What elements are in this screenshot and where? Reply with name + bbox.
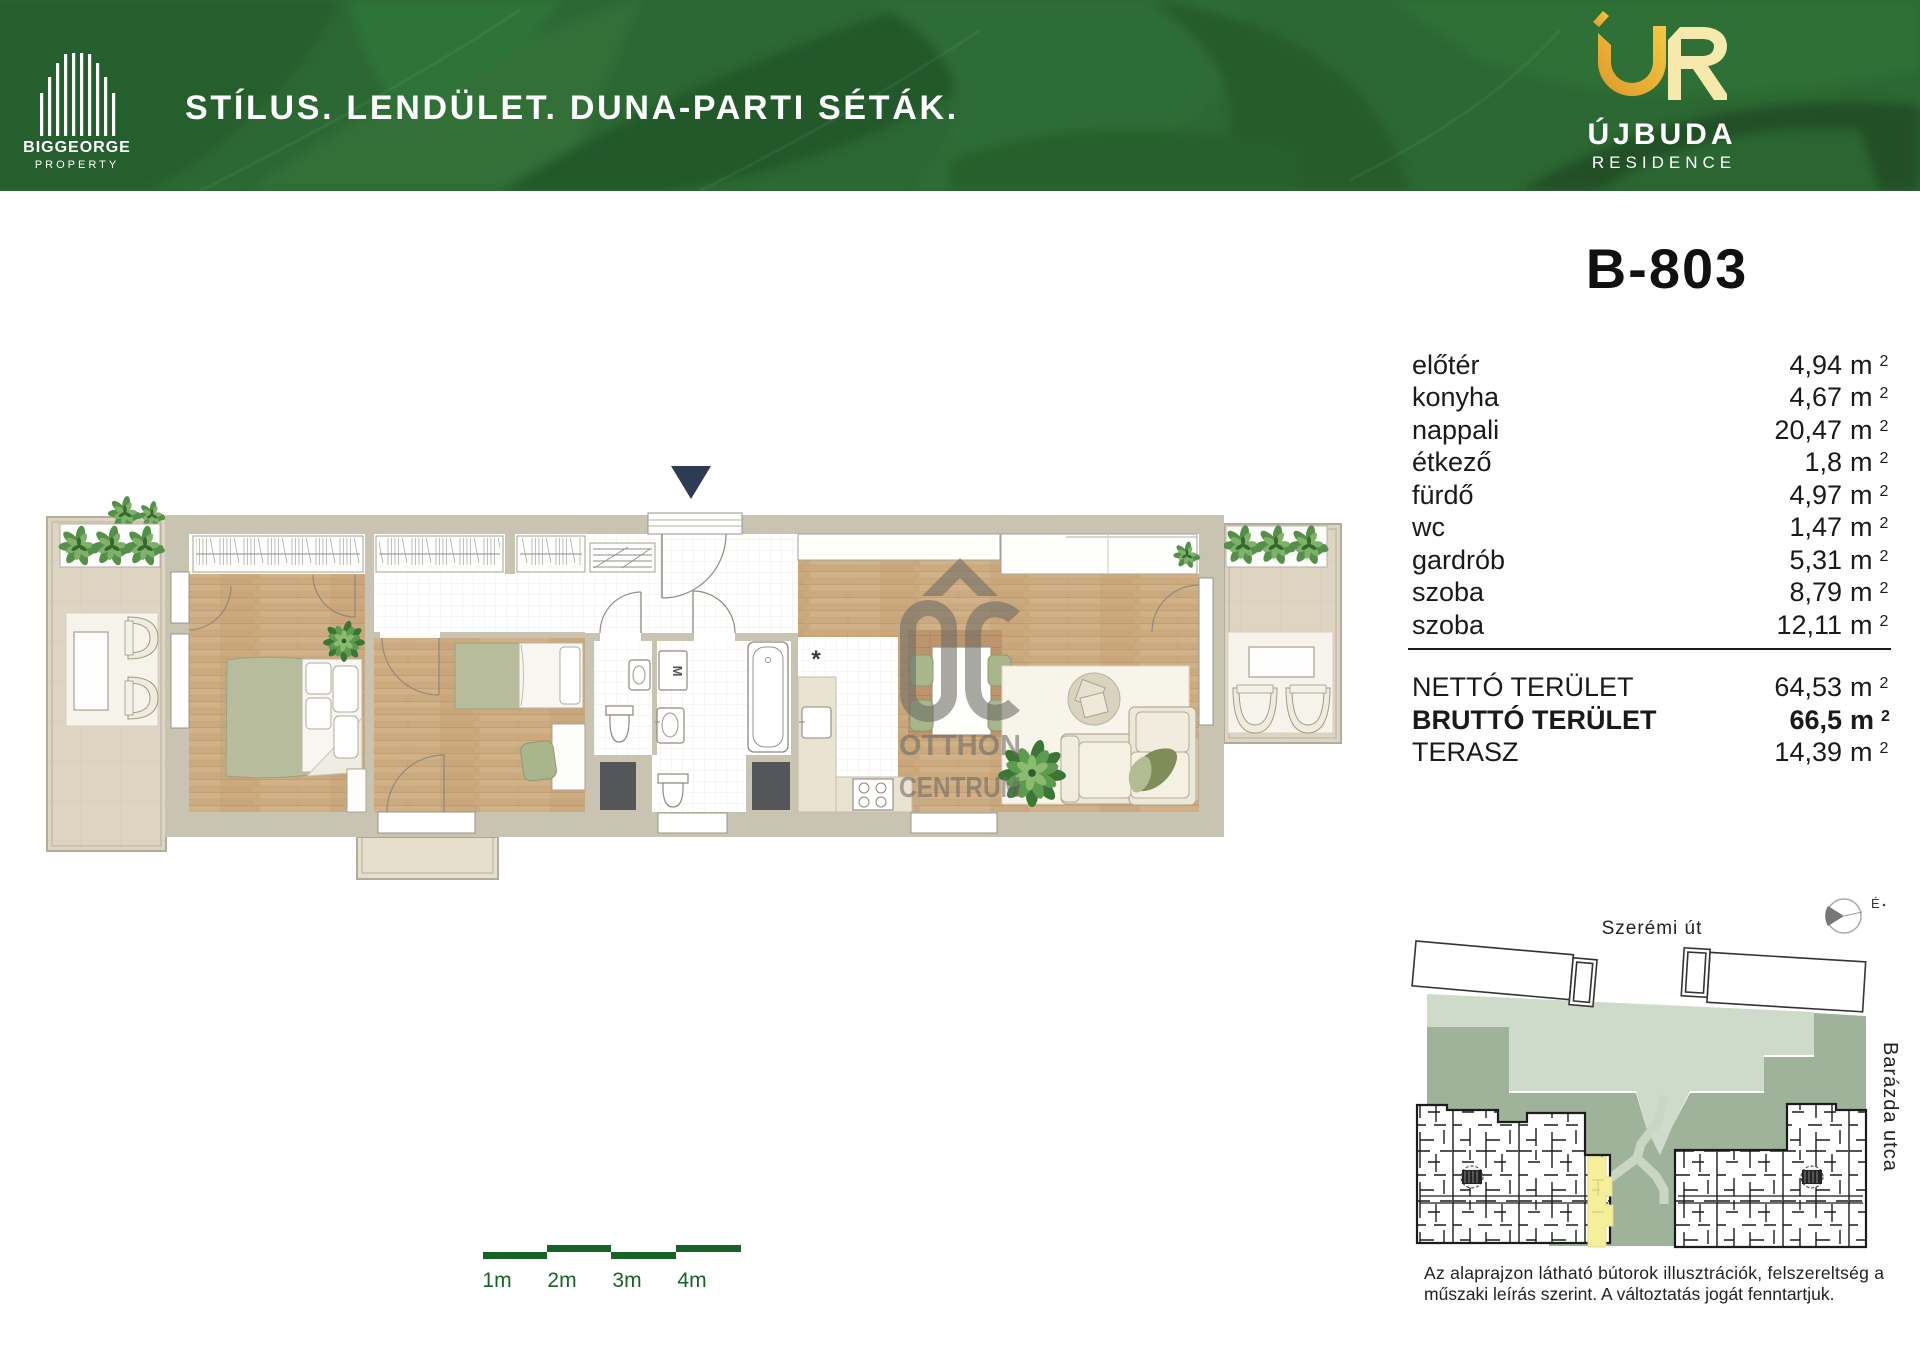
svg-text:műszaki leírás szerint. A vál: műszaki leírás szerint. A változtatás jo… bbox=[1424, 1284, 1834, 1304]
svg-text:Barázda utca: Barázda utca bbox=[1879, 1042, 1901, 1172]
svg-text:*: * bbox=[811, 646, 821, 673]
svg-text:Szerémi út: Szerémi út bbox=[1602, 918, 1703, 939]
svg-text:2m: 2m bbox=[547, 1269, 576, 1292]
svg-text:M: M bbox=[670, 666, 685, 677]
svg-text:4m: 4m bbox=[677, 1269, 706, 1292]
svg-text:OTTHON: OTTHON bbox=[899, 730, 1021, 762]
svg-text:É: É bbox=[1871, 896, 1880, 911]
svg-text:3m: 3m bbox=[612, 1269, 641, 1292]
svg-text:Az alaprajzon látható bútorok: Az alaprajzon látható bútorok illusztrác… bbox=[1424, 1263, 1884, 1283]
svg-text:1m: 1m bbox=[482, 1269, 511, 1292]
svg-text:CENTRUM: CENTRUM bbox=[899, 772, 1021, 804]
